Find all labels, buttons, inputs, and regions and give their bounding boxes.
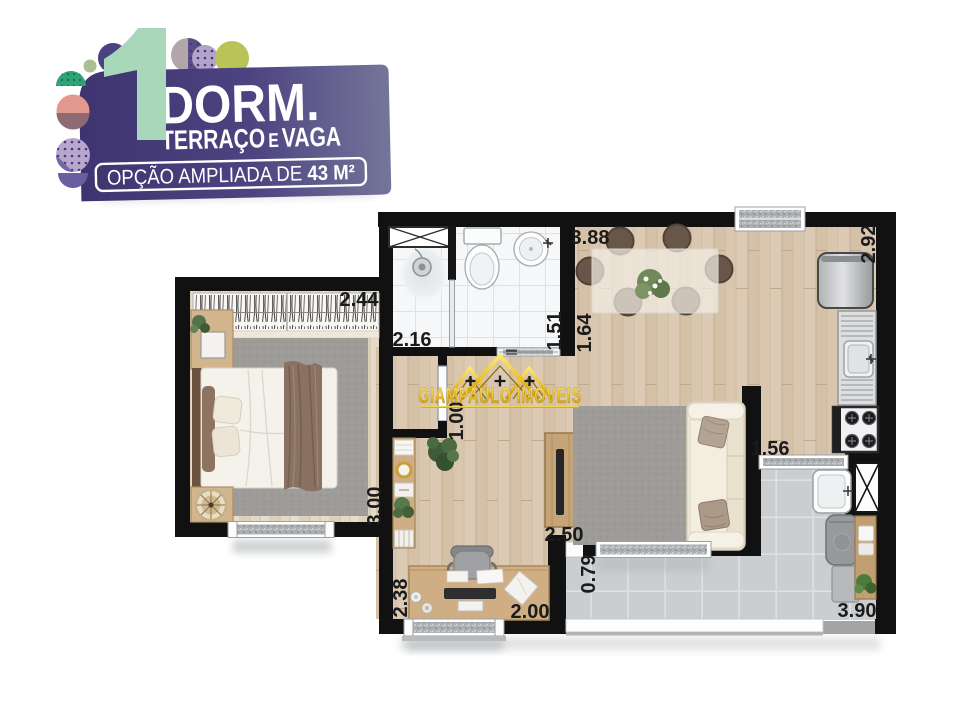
svg-text:2.92: 2.92 xyxy=(858,225,880,264)
svg-text:2.16: 2.16 xyxy=(393,329,432,351)
svg-text:3.88: 3.88 xyxy=(571,227,610,249)
svg-text:2.38: 2.38 xyxy=(390,579,412,618)
svg-text:2.44: 2.44 xyxy=(340,289,380,311)
svg-text:3.00: 3.00 xyxy=(364,487,386,526)
svg-text:1.51: 1.51 xyxy=(544,312,566,351)
svg-text:0.79: 0.79 xyxy=(578,555,600,594)
svg-text:2.00: 2.00 xyxy=(511,601,550,623)
svg-text:1.56: 1.56 xyxy=(751,438,790,460)
svg-text:3.90: 3.90 xyxy=(838,600,877,622)
svg-text:TERRAÇO E VAGA: TERRAÇO E VAGA xyxy=(161,121,342,155)
svg-text:GIAMPAULO IMÓVEIS: GIAMPAULO IMÓVEIS xyxy=(418,383,582,408)
svg-text:1.64: 1.64 xyxy=(574,313,596,353)
svg-text:2.50: 2.50 xyxy=(545,524,584,546)
